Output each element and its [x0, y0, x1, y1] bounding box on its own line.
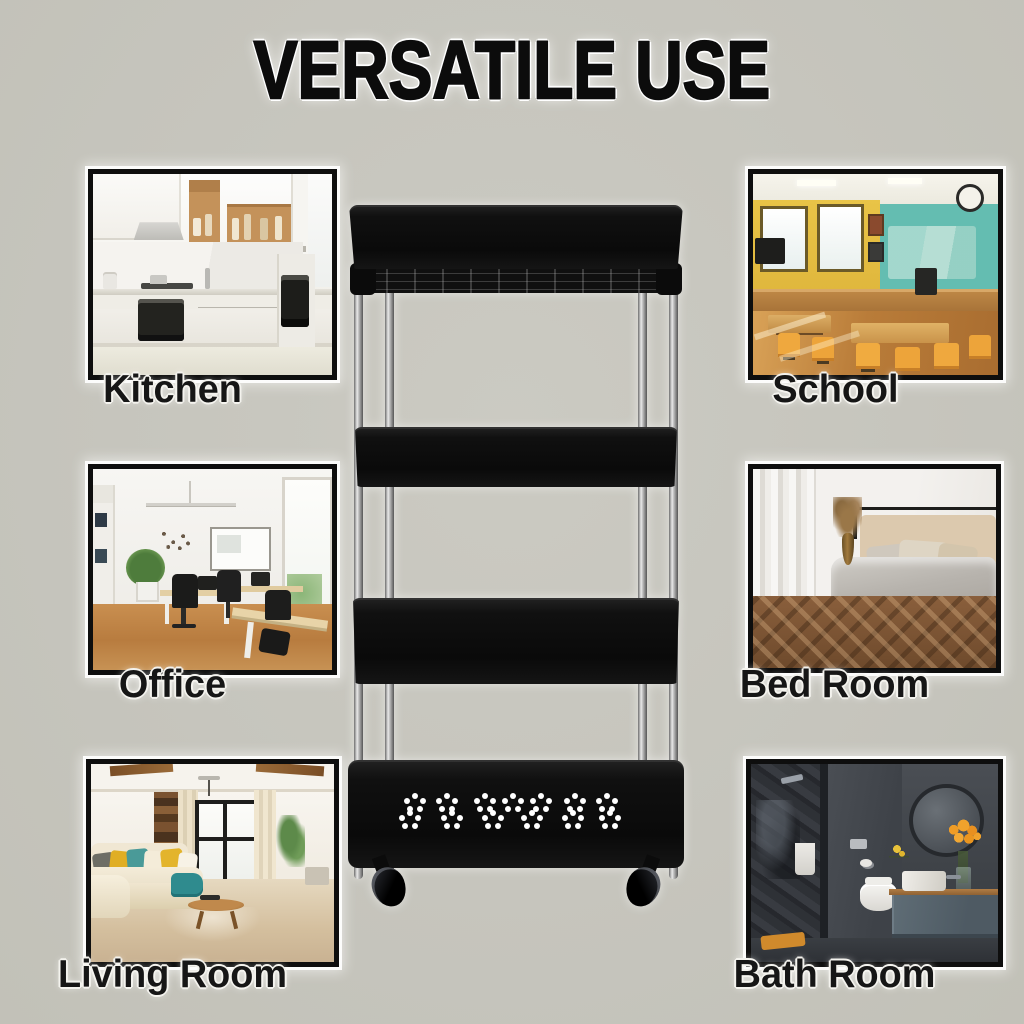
office-chair — [265, 590, 291, 620]
kitchen-backsplash — [93, 242, 303, 290]
bath-flowers — [944, 819, 984, 855]
office-chair — [172, 574, 198, 608]
living-throw-teal — [171, 873, 203, 897]
office-pendant-light — [146, 503, 237, 506]
room-label-school: School — [712, 368, 959, 412]
bathroom-photo-art — [751, 764, 998, 962]
school-photo-art — [753, 174, 998, 375]
bath-vase — [956, 867, 971, 891]
bath-partition — [820, 764, 827, 946]
poster: VERSATILE USE — [0, 0, 1024, 1024]
room-label-bedroom: Bed Room — [712, 663, 957, 707]
kitchen-stove — [141, 283, 194, 289]
product-cart-image — [348, 205, 684, 917]
living-sofa-arm — [91, 875, 130, 919]
cart-wire-shelf — [360, 267, 672, 293]
school-chair — [856, 343, 881, 369]
bath-small-flower — [889, 843, 909, 867]
living-room-photo-art — [91, 764, 334, 962]
living-room-photo — [86, 759, 339, 967]
school-chair — [934, 343, 959, 369]
school-coffee-machine — [915, 268, 937, 294]
office-chair — [217, 570, 241, 602]
office-floor — [93, 604, 332, 670]
bedroom-vase — [842, 533, 854, 565]
office-shelf-column — [93, 485, 115, 610]
kitchen-photo — [88, 169, 337, 380]
bath-flush-plate — [850, 839, 867, 849]
cart-basket-tier-3 — [351, 598, 681, 684]
bedroom-vase-sprigs — [833, 497, 862, 537]
kitchen-faucet — [205, 268, 210, 288]
room-label-kitchen: Kitchen — [52, 368, 294, 412]
school-cabinets — [753, 289, 998, 311]
kitchen-photo-art — [93, 174, 332, 375]
kitchen-wood-shelf — [189, 180, 220, 250]
bath-sink — [902, 871, 946, 891]
bath-faucet — [946, 875, 961, 879]
office-plant — [126, 549, 164, 585]
office-wall-art-dots — [160, 529, 193, 553]
living-coffee-table — [188, 899, 244, 911]
school-photo — [748, 169, 1003, 380]
kitchen-kettle — [103, 272, 117, 288]
office-monitor — [198, 576, 217, 590]
office-photo-art — [93, 469, 332, 670]
bathroom-photo — [746, 759, 1003, 967]
bedroom-photo-art — [753, 469, 996, 668]
bath-paper-holder — [860, 859, 872, 867]
cart-basket-tier-2 — [353, 427, 679, 487]
living-side-table — [305, 867, 329, 885]
room-label-office: Office — [52, 663, 294, 707]
school-chair — [969, 335, 991, 359]
kitchen-oven — [138, 299, 183, 341]
living-plant — [276, 815, 305, 866]
room-label-living-room: Living Room — [50, 953, 295, 997]
bath-vanity-cabinet — [892, 895, 998, 939]
living-curtain — [254, 790, 276, 889]
bedroom-partition-line — [853, 507, 996, 510]
office-photo — [88, 464, 337, 675]
bedroom-photo — [748, 464, 1001, 673]
page-title: VERSATILE USE — [102, 30, 921, 112]
bedroom-curtains — [753, 469, 816, 596]
cart-basket-tier-1 — [349, 205, 683, 269]
room-label-bathroom: Bath Room — [710, 953, 959, 997]
office-monitor — [251, 572, 270, 586]
kitchen-range-hood — [134, 222, 184, 240]
school-window-2 — [817, 204, 865, 272]
bath-towel — [795, 843, 815, 875]
school-tv — [755, 238, 784, 264]
